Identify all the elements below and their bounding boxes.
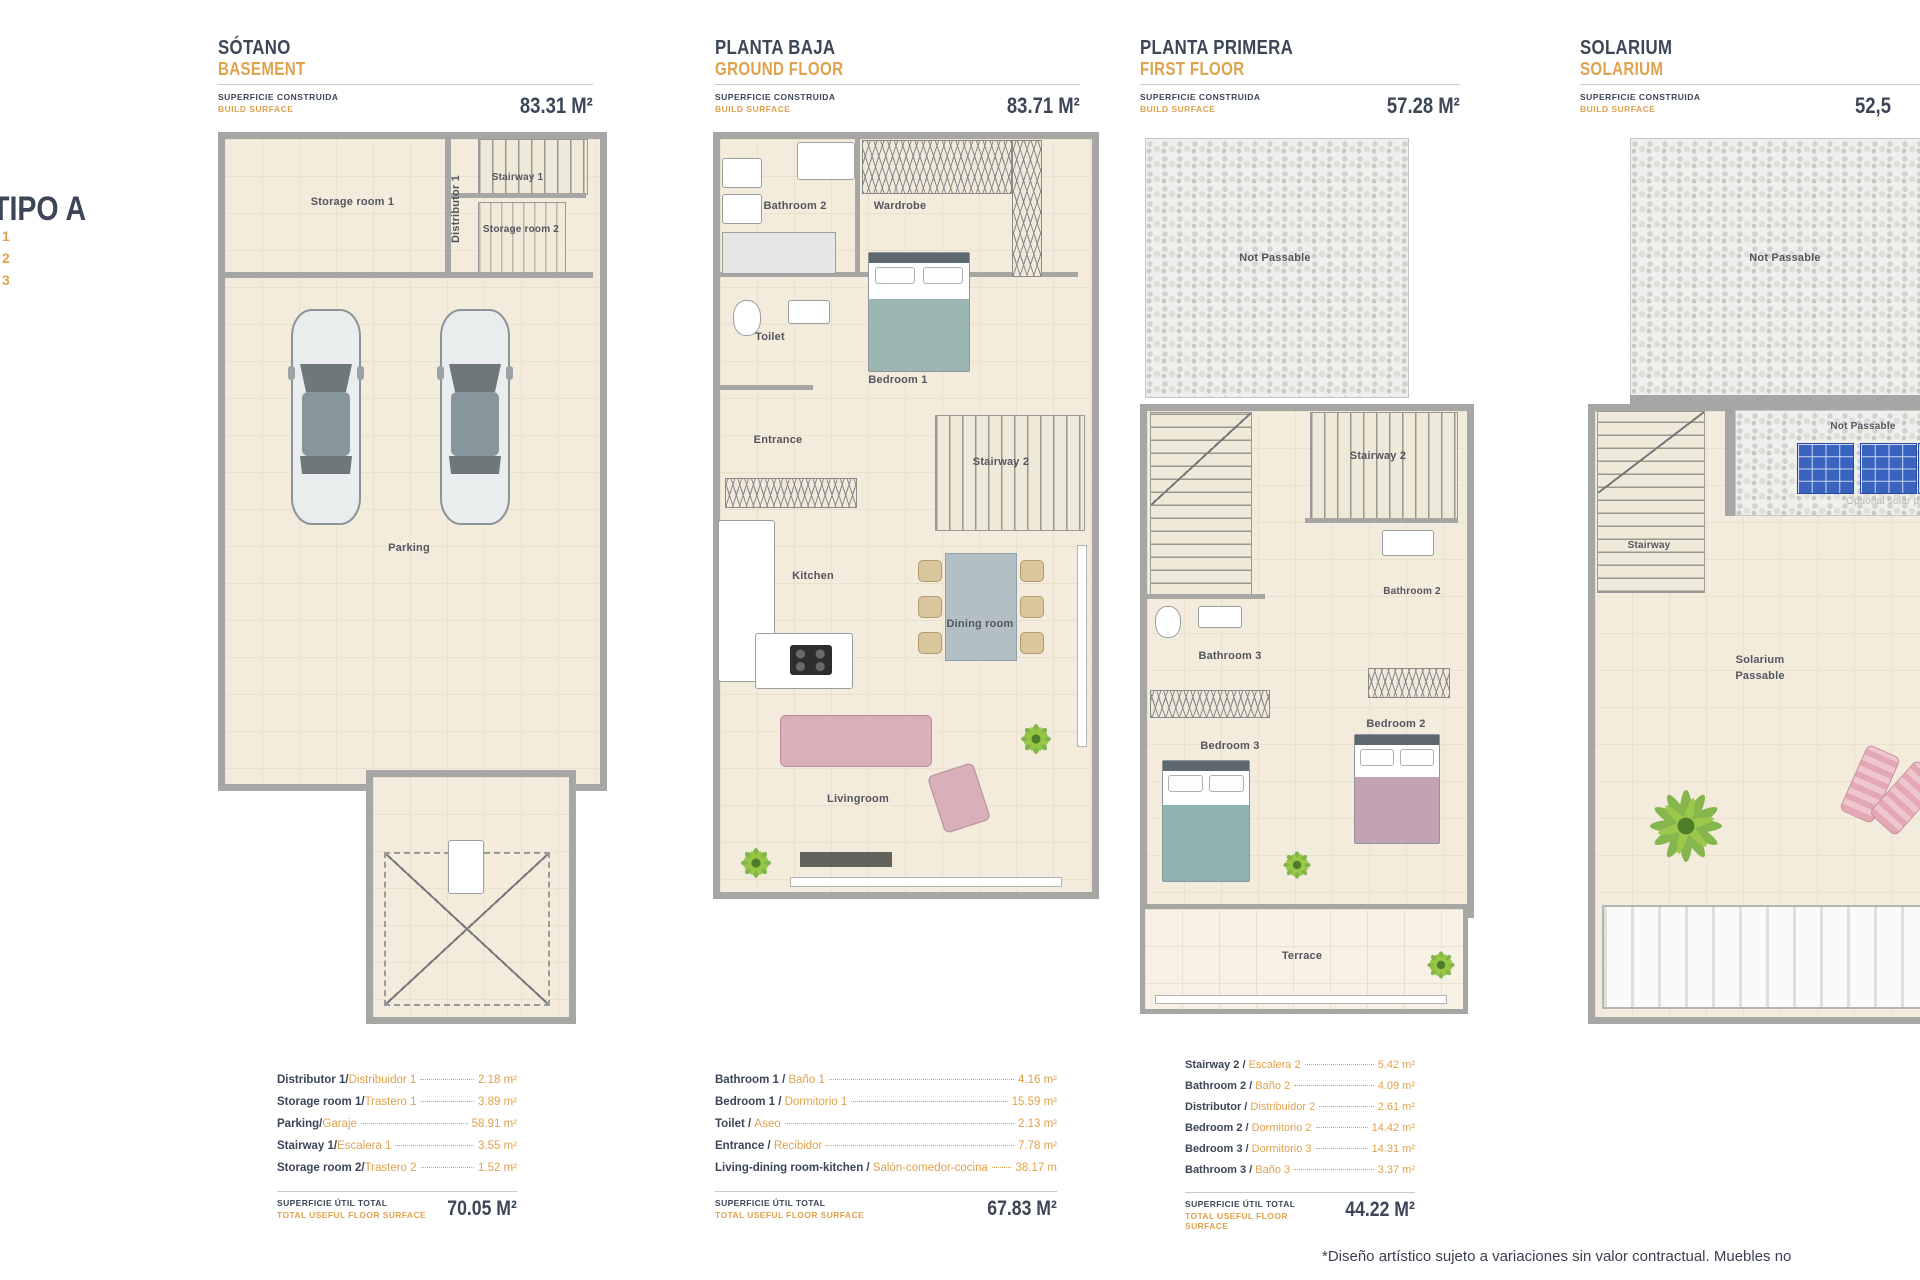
room-area-value: 5.42 m² [1378, 1059, 1415, 1071]
leader-line [421, 1101, 474, 1102]
room-name-es: Recibidor [774, 1140, 823, 1152]
type-title: TIPO A [0, 190, 104, 229]
bed [1162, 760, 1250, 882]
room-label-bathroom-3: Bathroom 3 [1182, 650, 1278, 662]
plan-title-en-text: SOLARIUM [1580, 59, 1663, 79]
dining-chair [1020, 560, 1044, 582]
headboard [869, 253, 969, 263]
plan-title-es: PLANTA PRIMERA [1140, 38, 1460, 59]
not-passable-roof-area [1145, 138, 1409, 398]
car-top-view [288, 306, 364, 528]
room-name-es: Salón-comedor-cocina [873, 1162, 988, 1174]
plant-icon [733, 840, 779, 886]
closet-hatch [1150, 690, 1270, 718]
dining-chair [1020, 632, 1044, 654]
total-value: 44.22 M² [1332, 1199, 1415, 1221]
room-area-value: 3.89 m² [478, 1096, 517, 1108]
room-label-stairway-1: Stairway 1 [480, 172, 555, 183]
room-area-value: 4.16 m² [1018, 1074, 1057, 1086]
plan-header-first-floor: PLANTA PRIMERA FIRST FLOOR SUPERFICIE CO… [1140, 38, 1460, 114]
room-name-en: Entrance / [715, 1140, 774, 1152]
room-area-value: 3.55 m² [478, 1140, 517, 1152]
dining-table [945, 553, 1017, 661]
build-surface-value-text: 57.28 M² [1387, 93, 1460, 119]
plant-icon [1276, 844, 1318, 886]
leader-line [992, 1167, 1012, 1168]
room-area-value: 14.42 m² [1372, 1122, 1415, 1134]
stairway-2-steps [1310, 412, 1458, 520]
room-label-terrace: Terrace [1254, 950, 1350, 962]
palm-plant-icon [1638, 778, 1734, 874]
table-row: Bedroom 1 / Dormitorio 115.59 m² [715, 1096, 1057, 1118]
partition-wall [225, 272, 593, 278]
pergola [1602, 905, 1920, 1009]
leader-line [1294, 1169, 1374, 1170]
room-label-bathroom-2: Bathroom 2 [1364, 586, 1460, 597]
plan-title-en: BASEMENT [218, 59, 593, 79]
type-title-text: TIPO A [0, 190, 86, 229]
room-label-bedroom-2: Bedroom 2 [1348, 718, 1444, 730]
headboard [1163, 761, 1249, 771]
room-label-not-passable: Not Passable [1730, 252, 1840, 264]
room-label-bedroom-3: Bedroom 3 [1182, 740, 1278, 752]
leader-line [1305, 1064, 1374, 1065]
plant-icon [1420, 944, 1462, 986]
table-divider [277, 1191, 517, 1192]
sink [722, 158, 762, 188]
room-area-value: 2.61 m² [1378, 1101, 1415, 1113]
room-name-en: Living-dining room-kitchen / [715, 1162, 873, 1174]
sink [788, 300, 830, 324]
first-floor-areas-table: Stairway 2 / Escalera 25.42 m² Bathroom … [1185, 1059, 1415, 1231]
room-label-storage-2: Storage room 2 [478, 224, 564, 235]
plan-title-en-text: FIRST FLOOR [1140, 59, 1244, 79]
blanket [869, 299, 969, 371]
header-divider [1140, 84, 1460, 85]
table-row: Stairway 1/Escalera 13.55 m² [277, 1140, 517, 1162]
blanket [1355, 777, 1439, 843]
room-name-en: Storage room 2/ [277, 1162, 365, 1174]
table-row: Storage room 1/Trastero 13.89 m² [277, 1096, 517, 1118]
plan-title-en-text: BASEMENT [218, 59, 306, 79]
closet-hatch [1368, 668, 1450, 698]
room-label-entrance: Entrance [730, 434, 826, 446]
type-list-item-2: 2 [2, 250, 10, 266]
room-name-es: Escalera 1 [337, 1140, 391, 1152]
partition-wall [1725, 404, 1735, 516]
total-value: 70.05 M² [434, 1198, 517, 1220]
room-name-es: Distribuidor 1 [349, 1074, 417, 1086]
room-area-value: 15.59 m² [1012, 1096, 1057, 1108]
leader-line [395, 1145, 474, 1146]
leader-line [361, 1123, 468, 1124]
leader-line [1294, 1085, 1374, 1086]
build-surface-value: 57.28 M² [1373, 93, 1460, 119]
table-row: Distributor 1/Distribuidor 12.18 m² [277, 1074, 517, 1096]
room-name-en: Bedroom 3 / [1185, 1143, 1252, 1155]
total-label-es: SUPERFICIE ÚTIL TOTAL [277, 1198, 426, 1208]
total-labels: SUPERFICIE ÚTIL TOTAL TOTAL USEFUL FLOOR… [277, 1198, 426, 1220]
room-name-en: Bathroom 3 / [1185, 1164, 1255, 1176]
build-surface-value: 83.71 M² [993, 93, 1080, 119]
stairway-2-steps [935, 415, 1085, 531]
leader-line [421, 1167, 474, 1168]
room-area-value: 4.09 m² [1378, 1080, 1415, 1092]
room-area-value: 38.17 m [1015, 1162, 1057, 1174]
window [790, 877, 1062, 887]
room-label-not-passable: Not Passable [1808, 421, 1918, 432]
room-label-parking: Parking [359, 542, 459, 554]
ramp-marker [448, 840, 484, 894]
table-row: Entrance / Recibidor7.78 m² [715, 1140, 1057, 1162]
room-name-es: Dormitorio 2 [1252, 1122, 1312, 1134]
room-name-es: Escalera 2 [1249, 1059, 1301, 1071]
stair-direction-line [1151, 413, 1251, 505]
room-label-bathroom-2: Bathroom 2 [740, 200, 850, 212]
stairway-1-steps [478, 139, 588, 195]
type-list-item-3: 3 [2, 272, 10, 288]
shower [722, 232, 836, 274]
plan-title-es-text: SÓTANO [218, 38, 291, 59]
total-label-es: SUPERFICIE ÚTIL TOTAL [715, 1198, 864, 1208]
room-name-en: Distributor 1/ [277, 1074, 349, 1086]
solar-panel [1860, 443, 1917, 494]
room-name-en: Stairway 1/ [277, 1140, 337, 1152]
room-label-stairway-2: Stairway 2 [951, 456, 1051, 468]
total-label-en: TOTAL USEFUL FLOOR SURFACE [715, 1210, 864, 1220]
room-name-en: Stairway 2 / [1185, 1059, 1249, 1071]
header-divider [218, 84, 593, 85]
table-divider [1185, 1192, 1415, 1193]
ground-floor-areas-table: Bathroom 1 / Baño 14.16 m² Bedroom 1 / D… [715, 1074, 1057, 1220]
window [1155, 995, 1447, 1004]
wardrobe-hatch [1012, 140, 1042, 277]
room-name-es: Baño 2 [1255, 1080, 1290, 1092]
leader-line [829, 1079, 1014, 1080]
room-name-es: Distribuidor 2 [1250, 1101, 1315, 1113]
plant-icon [1013, 716, 1059, 762]
total-value: 67.83 M² [974, 1198, 1057, 1220]
leader-line [785, 1123, 1014, 1124]
plan-title-en: SOLARIUM [1580, 59, 1920, 79]
room-name-es: Aseo [754, 1118, 780, 1130]
table-row: Bathroom 2 / Baño 24.09 m² [1185, 1080, 1415, 1101]
table-row: Storage room 2/Trastero 21.52 m² [277, 1162, 517, 1184]
pillow [1168, 775, 1203, 792]
pillow [1360, 749, 1394, 766]
room-name-en: Bathroom 1 / [715, 1074, 788, 1086]
stairway-steps [1597, 411, 1705, 593]
room-area-value: 2.13 m² [1018, 1118, 1057, 1130]
room-name-en: Distributor / [1185, 1101, 1250, 1113]
dining-chair [918, 596, 942, 618]
room-area-value: 2.18 m² [478, 1074, 517, 1086]
room-area-value: 3.37 m² [1378, 1164, 1415, 1176]
pillow [875, 267, 915, 284]
table-row: Bathroom 1 / Baño 14.16 m² [715, 1074, 1057, 1096]
room-label-kitchen: Kitchen [780, 570, 846, 582]
header-divider [715, 84, 1080, 85]
room-name-es: Garaje [322, 1118, 357, 1130]
room-label-not-passable: Not Passable [1222, 252, 1328, 264]
room-name-es: Trastero 2 [365, 1162, 417, 1174]
build-surface-value: 52,5 [1855, 93, 1898, 119]
plan-title-en-text: GROUND FLOOR [715, 59, 843, 79]
room-area-value: 14.31 m² [1372, 1143, 1415, 1155]
not-passable-roof-area [1630, 138, 1920, 397]
closet-hatch [725, 478, 857, 508]
room-name-en: Bedroom 2 / [1185, 1122, 1252, 1134]
basement-areas-table: Distributor 1/Distribuidor 12.18 m² Stor… [277, 1074, 517, 1220]
wardrobe-hatch [862, 140, 1012, 194]
plan-title-es: SÓTANO [218, 38, 593, 59]
dining-chair [918, 560, 942, 582]
partition-wall [713, 385, 813, 390]
room-label-bedroom-1: Bedroom 1 [848, 374, 948, 386]
room-label-dining-room: Dining room [926, 618, 1034, 630]
header-divider [1580, 84, 1920, 85]
bathtub [797, 142, 855, 180]
room-label-distributor-1: Distributor 1 [450, 152, 462, 267]
room-label-wardrobe: Wardrobe [850, 200, 950, 212]
leader-line [1316, 1148, 1368, 1149]
table-row: Bedroom 3 / Dormitorio 314.31 m² [1185, 1143, 1415, 1164]
plan-title-es-text: PLANTA BAJA [715, 38, 835, 59]
room-name-en: Bathroom 2 / [1185, 1080, 1255, 1092]
pillow [1400, 749, 1434, 766]
room-name-es: Dormitorio 3 [1252, 1143, 1312, 1155]
room-area-value: 7.78 m² [1018, 1140, 1057, 1152]
table-total-row: SUPERFICIE ÚTIL TOTAL TOTAL USEFUL FLOOR… [277, 1198, 517, 1220]
plan-title-en: GROUND FLOOR [715, 59, 1080, 79]
table-row: Parking/Garaje58.91 m² [277, 1118, 517, 1140]
build-surface-value-text: 83.31 M² [520, 93, 593, 119]
floorplan-sheet: TIPO A 1 2 3 SÓTANO BASEMENT SUPERFICIE … [0, 0, 1920, 1280]
garage-ramp [384, 852, 550, 1006]
table-row: Toilet / Aseo2.13 m² [715, 1118, 1057, 1140]
total-label-en: TOTAL USEFUL FLOOR SURFACE [1185, 1211, 1332, 1231]
total-value-text: 67.83 M² [987, 1198, 1057, 1220]
dining-chair [1020, 596, 1044, 618]
pillow [1209, 775, 1244, 792]
total-label-es: SUPERFICIE ÚTIL TOTAL [1185, 1199, 1332, 1209]
leader-line [826, 1145, 1014, 1146]
sink [1382, 530, 1434, 556]
plan-title-es: PLANTA BAJA [715, 38, 1080, 59]
partition-wall [1147, 594, 1265, 599]
room-area-value: 58.91 m² [472, 1118, 517, 1130]
table-row: Bedroom 2 / Dormitorio 214.42 m² [1185, 1122, 1415, 1143]
leader-line [851, 1101, 1007, 1102]
table-divider [715, 1191, 1057, 1192]
blanket [1163, 805, 1249, 881]
plan-title-es: SOLARIUM [1580, 38, 1920, 59]
plan-title-es-text: PLANTA PRIMERA [1140, 38, 1293, 59]
sofa [780, 715, 932, 767]
plan-header-solarium: SOLARIUM SOLARIUM SUPERFICIE CONSTRUIDA … [1580, 38, 1920, 114]
room-name-es: Baño 3 [1255, 1164, 1290, 1176]
build-surface-value-text: 52,5 [1855, 93, 1891, 119]
table-total-row: SUPERFICIE ÚTIL TOTAL TOTAL USEFUL FLOOR… [715, 1198, 1057, 1220]
solar-panel [1797, 443, 1854, 494]
room-label-toilet: Toilet [725, 331, 815, 343]
room-area-value: 1.52 m² [478, 1162, 517, 1174]
dining-chair [918, 632, 942, 654]
room-name-en: Parking/ [277, 1118, 322, 1130]
bed [868, 252, 970, 372]
disclaimer-text: *Diseño artístico sujeto a variaciones s… [1322, 1248, 1791, 1265]
car-top-view [437, 306, 513, 528]
table-row: Distributor / Distribuidor 22.61 m² [1185, 1101, 1415, 1122]
headboard [1355, 735, 1439, 745]
room-label-storage-1: Storage room 1 [295, 196, 410, 208]
total-value-text: 70.05 M² [447, 1198, 517, 1220]
total-labels: SUPERFICIE ÚTIL TOTAL TOTAL USEFUL FLOOR… [1185, 1199, 1332, 1231]
sink [1198, 606, 1242, 628]
type-list-item-1: 1 [2, 228, 10, 244]
table-row: Stairway 2 / Escalera 25.42 m² [1185, 1059, 1415, 1080]
pillow [923, 267, 963, 284]
room-name-es: Trastero 1 [365, 1096, 417, 1108]
window [1077, 545, 1087, 747]
plan-title-es-text: SOLARIUM [1580, 38, 1672, 59]
room-name-en: Toilet / [715, 1118, 754, 1130]
room-label-stairway: Stairway [1608, 540, 1690, 551]
room-name-es: Baño 1 [788, 1074, 824, 1086]
partition-wall [1305, 518, 1458, 523]
solar-panel-note: Optional solar pa [1838, 496, 1920, 507]
build-surface-value-text: 83.71 M² [1007, 93, 1080, 119]
room-name-es: Dormitorio 1 [785, 1096, 848, 1108]
leader-line [420, 1079, 474, 1080]
room-name-en: Storage room 1/ [277, 1096, 365, 1108]
plan-header-ground-floor: PLANTA BAJA GROUND FLOOR SUPERFICIE CONS… [715, 38, 1080, 114]
stairwell-steps [1150, 412, 1252, 598]
table-row: Bathroom 3 / Baño 33.37 m² [1185, 1164, 1415, 1185]
table-row: Living-dining room-kitchen / Salón-comed… [715, 1162, 1057, 1184]
build-surface-value: 83.31 M² [506, 93, 593, 119]
total-labels: SUPERFICIE ÚTIL TOTAL TOTAL USEFUL FLOOR… [715, 1198, 864, 1220]
stove [790, 645, 832, 675]
wall-band [1630, 395, 1920, 406]
total-label-en: TOTAL USEFUL FLOOR SURFACE [277, 1210, 426, 1220]
plan-header-basement: SÓTANO BASEMENT SUPERFICIE CONSTRUIDA BU… [218, 38, 593, 114]
storage-2-under-stairs [478, 202, 566, 274]
table-total-row: SUPERFICIE ÚTIL TOTAL TOTAL USEFUL FLOOR… [1185, 1199, 1415, 1231]
room-label-stairway-2: Stairway 2 [1328, 450, 1428, 462]
leader-line [1316, 1127, 1368, 1128]
room-label-solarium-line2: Passable [1712, 670, 1808, 682]
leader-line [1319, 1106, 1374, 1107]
room-label-solarium-line1: Solarium [1712, 654, 1808, 666]
partition-wall [451, 193, 586, 198]
bed [1354, 734, 1440, 844]
toilet-fixture [1155, 606, 1181, 638]
stair-direction-line [1598, 412, 1704, 493]
plan-title-en: FIRST FLOOR [1140, 59, 1460, 79]
tv-bench [800, 852, 892, 867]
room-label-livingroom: Livingroom [810, 793, 906, 805]
room-name-en: Bedroom 1 / [715, 1096, 785, 1108]
total-value-text: 44.22 M² [1345, 1199, 1415, 1221]
